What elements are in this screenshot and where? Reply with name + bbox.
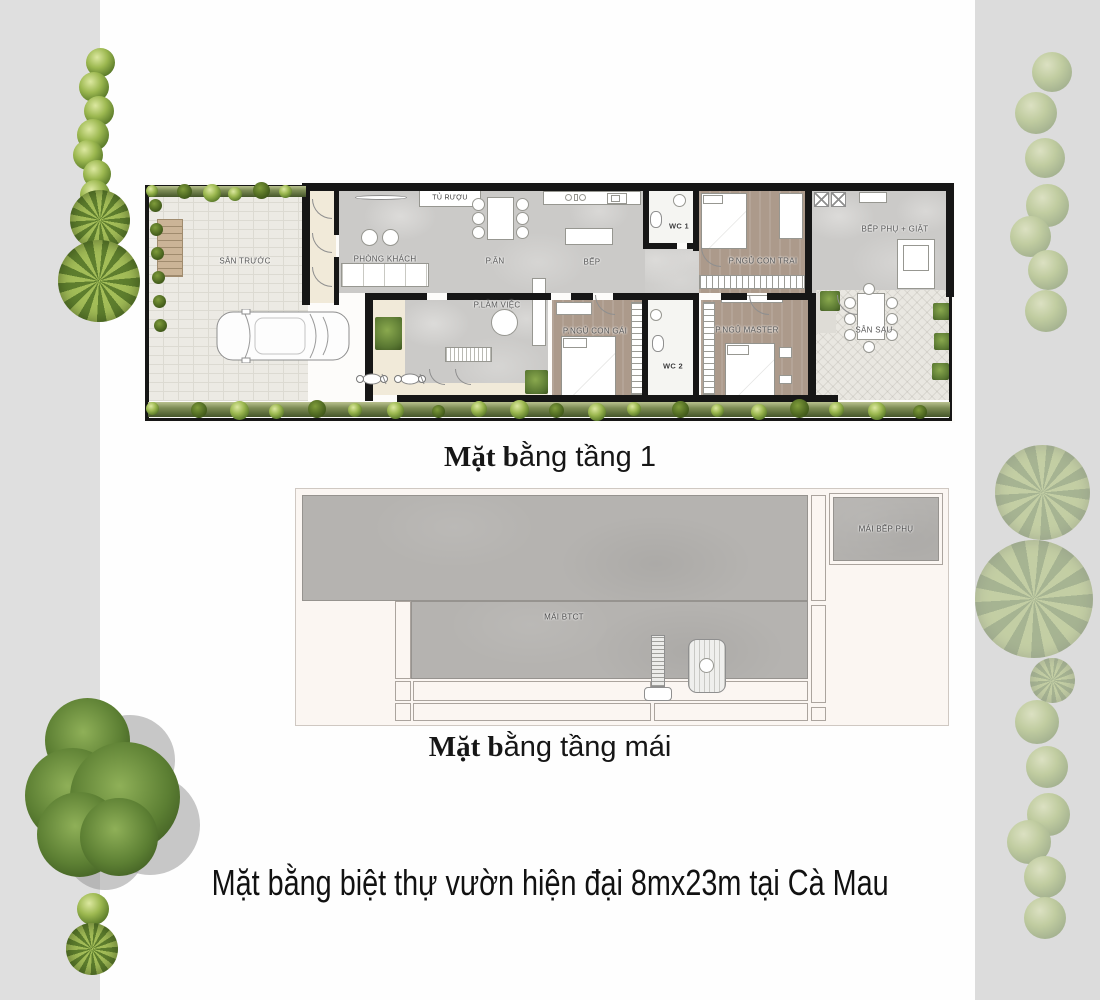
roof-gutter [395,703,411,721]
wc1-sink [673,194,686,207]
dining-chair [472,226,485,239]
floor1-title-bold: Mặt b [444,441,519,473]
nightstand [779,375,792,384]
shrub [933,303,950,320]
stove-burner [579,194,586,201]
work-sofa [532,278,546,346]
hall-floor [645,249,699,293]
hedge-bush-icon [829,402,844,417]
roof-gutter [395,681,411,701]
bush-icon [1030,658,1075,703]
wc1-toilet [650,211,662,228]
pouf [382,229,399,246]
large-tree-icon [25,690,195,890]
hedge-bush-icon [751,404,767,420]
roof-plan: MÁI BTCTMÁI BẾP PHỤ [295,488,949,726]
room-label-mai-bep-phu: MÁI BẾP PHỤ [859,525,914,534]
wall-segment [148,418,952,421]
bush-icon [1026,746,1068,788]
bush-icon [1025,290,1067,332]
room-label-san-truoc: SÂN TRƯỚC [219,257,270,266]
pouf [361,229,378,246]
outdoor-chair [886,313,898,325]
room-label-mai-btct: MÁI BTCT [544,613,584,622]
yard-plant-icon [153,295,166,308]
hedge-bush-icon [790,399,809,418]
room-label-san-sau: SÂN SAU [855,326,892,335]
bush-icon [1015,92,1057,134]
wall-segment [334,191,339,235]
wall-segment [613,293,699,300]
wall-segment [302,183,954,191]
planter [525,370,548,394]
hedge-bush-icon [868,402,886,420]
motorbike-icon [355,367,389,391]
wall-segment [721,293,747,300]
page: SÂN TRƯỚCTỦ RƯỢUPHÒNG KHÁCHP.ĂNBẾPP.LÀM … [0,0,1100,1000]
wall-segment [693,300,699,397]
sofa [341,263,429,287]
outdoor-chair [863,283,875,295]
right-flora [950,0,1100,1000]
roof-title: Mặt bằng tầng mái [145,731,955,764]
roof-main-upper [302,495,808,601]
girl-pillow [563,338,587,348]
hedge-bush-icon [308,400,326,418]
master-closet [703,302,715,395]
hedge-bush-icon [146,185,158,197]
roof-terrace-strip [413,681,651,701]
wall-segment [649,243,677,249]
bush-icon [66,923,118,975]
bush-icon [1015,700,1059,744]
room-label-bep-phu-giat: BẾP PHỤ + GIẶT [862,225,929,234]
floor-plan-level1: SÂN TRƯỚCTỦ RƯỢUPHÒNG KHÁCHP.ĂNBẾPP.LÀM … [145,183,955,423]
room-label-wc1: WC 1 [669,222,689,231]
car-top-view-icon [215,309,351,363]
hedge-bush-icon [279,185,292,198]
yard-plant-icon [150,223,163,236]
tree-icon [995,445,1090,540]
hedge-bush-icon [510,400,529,419]
nightstand [779,347,792,358]
room-label-bep: BẾP [584,258,601,267]
roof-gutter [811,605,826,703]
bush-icon [1028,250,1068,290]
water-tank-cap [699,658,714,673]
roof-gutter [811,707,826,721]
wall-segment [643,191,649,249]
girl-desk [556,302,592,315]
wc2-toilet [652,335,664,352]
roof-gutter [811,495,826,601]
washing-machine [814,192,829,207]
boy-closet [699,275,805,289]
washing-machine [831,192,846,207]
dining-chair [516,226,529,239]
hedge-bush-icon [588,403,606,421]
yard-plant-icon [151,247,164,260]
hedge-bush-icon [627,402,641,416]
wall-segment [365,293,427,300]
planter [375,317,402,350]
dining-table [487,197,514,240]
bush-icon [1025,138,1065,178]
wall-segment [302,183,310,305]
stove-burner [565,194,572,201]
boy-desk [779,193,803,239]
dining-chair [472,198,485,211]
floor1-title-rest: ằng tầng 1 [519,441,656,473]
wall-segment [447,293,551,300]
wall-segment [145,185,149,421]
hedge-bush-icon [191,402,207,418]
roof-title-bold: Mặt b [429,731,504,763]
dining-chair [472,212,485,225]
wc2-sink [650,309,662,321]
dining-chair [516,212,529,225]
roof-title-rest: ằng tầng mái [504,731,672,763]
yard-plant-icon [149,199,162,212]
tree-icon [975,540,1093,658]
hedge-bush-icon [228,187,242,201]
left-flora [0,0,200,1000]
yard-plant-icon [152,271,165,284]
tree-icon [58,240,140,322]
sink-basin [611,195,620,202]
boy-pillow [703,195,723,204]
hedge-bush-icon [348,403,362,417]
dining-chair [516,198,529,211]
stove2 [859,192,887,203]
roof-terrace-strip [413,703,651,721]
outdoor-chair [844,329,856,341]
floor1-title: Mặt bằng tầng 1 [145,441,955,474]
wall-segment [808,293,816,401]
stove-knob [574,194,578,201]
caption: Mặt bằng biệt thự vườn hiện đại 8mx23m t… [0,862,1100,904]
caption-text: Mặt bằng biệt thự vườn hiện đại 8mx23m t… [211,862,888,904]
wall-segment [642,300,648,397]
solar-heater-base [644,687,672,701]
hedge-bush-icon [146,402,159,415]
motorbike-icon [393,367,427,391]
roof-terrace-strip [654,703,808,721]
roof-main-lower [411,601,808,679]
room-label-wc2: WC 2 [663,362,683,371]
wall-segment [805,183,812,295]
outdoor-chair [863,341,875,353]
hedge-bush-icon [471,401,487,417]
wall-segment [687,243,693,249]
hedge-bush-icon [387,402,404,419]
work-table [491,309,518,336]
room-label-p-an: P.ĂN [486,257,505,266]
outdoor-chair [886,297,898,309]
hedge-bush-icon [913,405,927,419]
wall-segment [334,257,339,305]
hedge-bush-icon [203,184,221,202]
shrub [932,363,949,380]
wall-segment [571,293,593,300]
wall-segment [693,191,699,251]
wall-segment [767,293,813,300]
room-label-tu-ruou: TỦ RƯỢU [432,195,467,202]
room-label-phong-khach: PHÒNG KHÁCH [354,255,417,264]
ceiling-vent [355,195,407,200]
hedge-bush-icon [432,405,445,418]
work-desk [445,347,492,362]
master-pillow [727,345,749,355]
laundry-sink [903,245,929,271]
room-label-p-lam-viec: P.LÀM VIỆC [474,301,521,310]
kitchen-island [565,228,613,245]
hedge-bush-icon [549,403,564,418]
room-label-p-ngu-con-gai: P.NGỦ CON GÁI [563,327,627,336]
room-label-p-ngu-con-trai: P.NGỦ CON TRAI [729,257,798,266]
roof-gutter [395,601,411,679]
wall-segment [946,183,954,297]
yard-plant-icon [154,319,167,332]
room-label-p-ngu-master: P.NGỦ MASTER [715,326,778,335]
bush-icon [1032,52,1072,92]
solar-heater-icon [651,635,665,687]
roof-terrace-strip [654,681,808,701]
